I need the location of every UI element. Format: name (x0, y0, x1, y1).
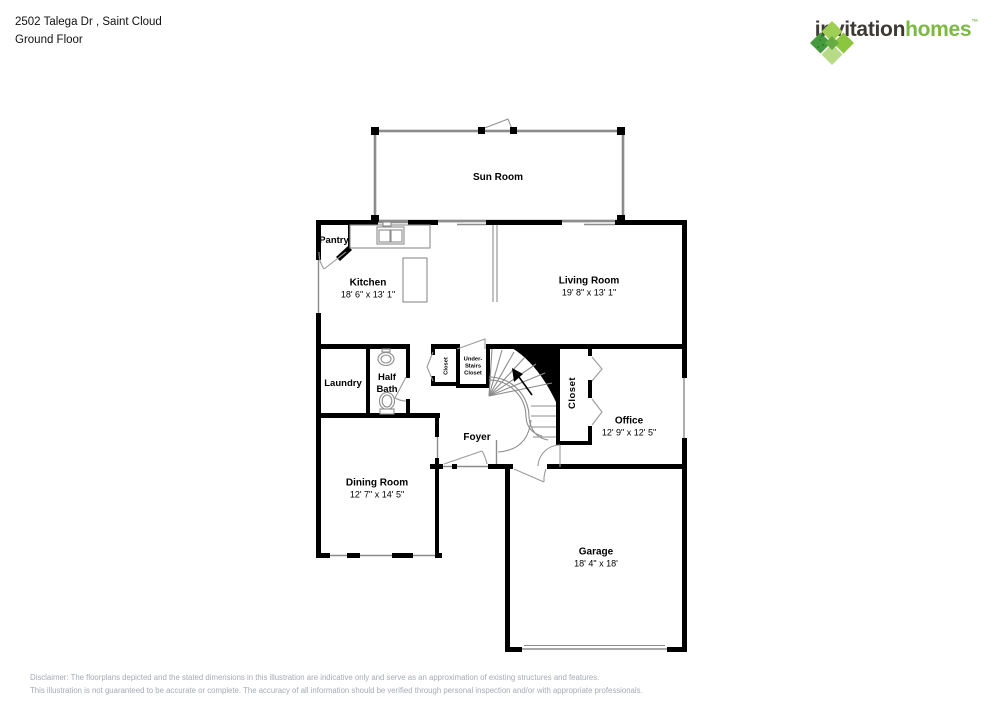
room-label-living-room: Living Room 19' 8" x 13' 1" (559, 276, 620, 299)
garage-entry-door-swing (544, 469, 546, 482)
office-door-swing (538, 445, 560, 466)
room-label-foyer: Foyer (463, 432, 490, 444)
pantry-door (324, 252, 346, 269)
front-door (444, 451, 482, 464)
half-bath-door-swing (395, 398, 406, 401)
garage-door (522, 646, 667, 650)
room-label-half-bath: Half Bath (370, 372, 404, 396)
room-label-sun-room: Sun Room (473, 172, 523, 184)
under-stairs-closet-door (457, 339, 485, 349)
disclaimer-line-1: Disclaimer: The floorplans depicted and … (30, 671, 599, 684)
staircase (489, 348, 556, 452)
disclaimer-line-2: This illustration is not guaranteed to b… (30, 684, 643, 697)
office-closet-door-bottom (592, 399, 602, 425)
room-label-under-stairs-closet: Under-Stairs Closet (458, 357, 488, 378)
room-label-laundry: Laundry (324, 378, 361, 390)
floorplan-svg (0, 0, 1000, 707)
room-label-office-closet: Closet (567, 377, 579, 409)
room-label-dining-room: Dining Room 12' 7" x 14' 5" (346, 478, 408, 501)
room-label-pantry: Pantry (319, 235, 349, 247)
room-label-garage: Garage 18' 4" x 18' (574, 547, 618, 570)
kitchen-faucet-icon (383, 222, 391, 226)
sun-room-walls (375, 119, 623, 221)
room-label-foyer-closet: Closet (444, 357, 451, 375)
bath-faucet-icon (382, 349, 390, 352)
office-closet-door-top (592, 357, 602, 381)
room-label-office: Office 12' 9" x 12' 5" (602, 416, 656, 439)
kitchen-island (403, 258, 427, 302)
garage-entry-door (514, 469, 544, 482)
front-door-swing (482, 451, 487, 464)
floorplan-page: 2502 Talega Dr , Saint Cloud Ground Floo… (0, 0, 1000, 707)
room-label-kitchen: Kitchen 18' 6" x 13' 1" (341, 278, 395, 301)
